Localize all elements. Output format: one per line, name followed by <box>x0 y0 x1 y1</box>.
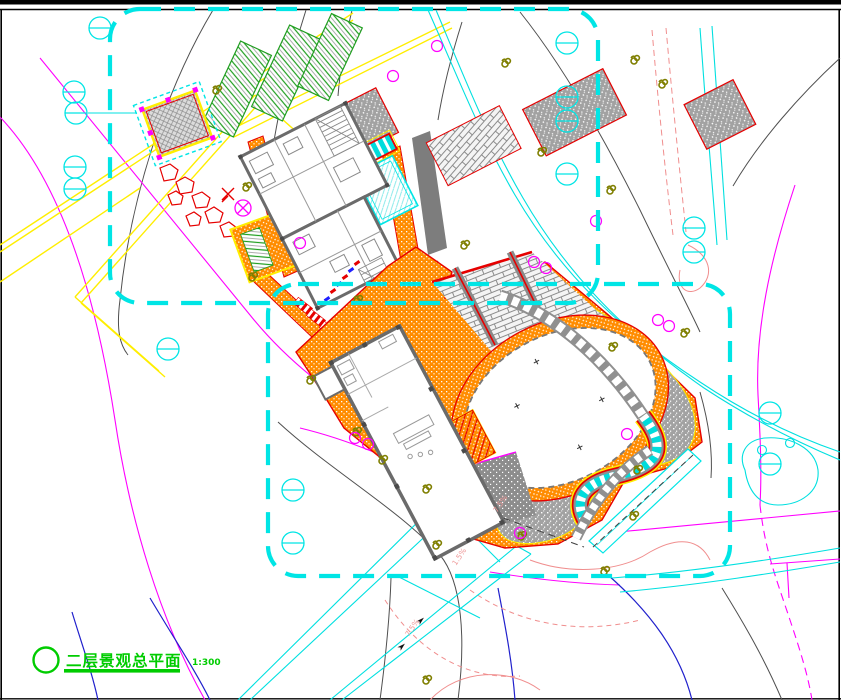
fountain-symbol <box>235 200 251 216</box>
landscape-plan-drawing: 7.5% 7.5% 1.5% 二层景观总平面 1:300 <box>0 0 841 700</box>
rockery-stones <box>160 164 237 237</box>
pavilion-terrace <box>133 82 221 166</box>
title-underline <box>64 669 180 673</box>
plan-scale: 1:300 <box>192 658 221 668</box>
cad-viewport: 7.5% 7.5% 1.5% 二层景观总平面 1:300 <box>0 0 841 700</box>
title-circle-marker <box>34 648 59 673</box>
plan-title: 二层景观总平面 <box>66 651 182 670</box>
